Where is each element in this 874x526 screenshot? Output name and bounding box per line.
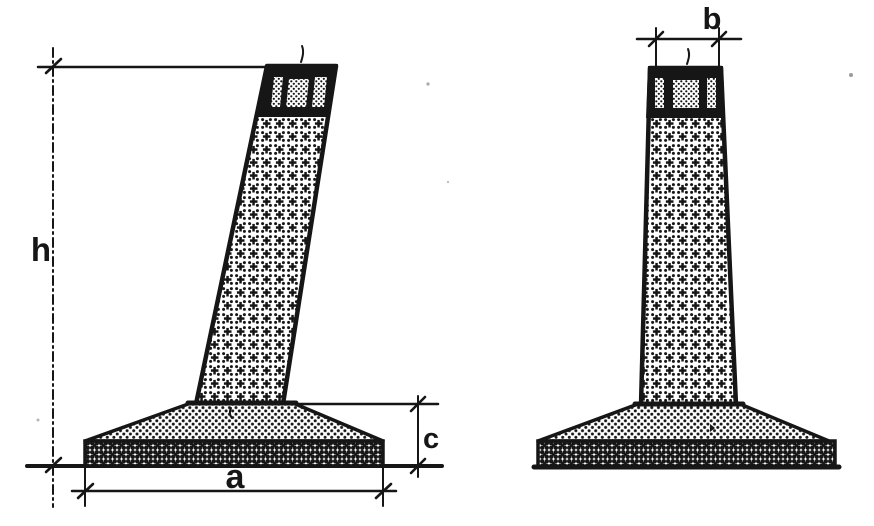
axis-tick-mark <box>687 49 689 64</box>
base-width-dimension-label: a <box>226 458 246 496</box>
axis-tick-mark <box>301 46 303 62</box>
front-footing-trapezoid <box>85 403 383 441</box>
side-post-body <box>641 68 736 405</box>
side-footing-trapezoid <box>538 404 829 441</box>
base-thickness-dimension-label: c <box>423 423 439 455</box>
cap-slot <box>673 80 699 108</box>
front-elevation-view: h a c <box>27 46 442 507</box>
side-base-slab <box>538 441 835 467</box>
height-dimension-label: h <box>31 231 51 268</box>
cap-slot <box>707 78 716 108</box>
side-elevation-view: b <box>534 1 839 467</box>
foundation-drawing: h a c b <box>0 0 874 526</box>
scanned-drawing-page: h a c b <box>0 0 874 526</box>
cap-slot <box>286 79 309 107</box>
cap-slot <box>655 78 664 108</box>
